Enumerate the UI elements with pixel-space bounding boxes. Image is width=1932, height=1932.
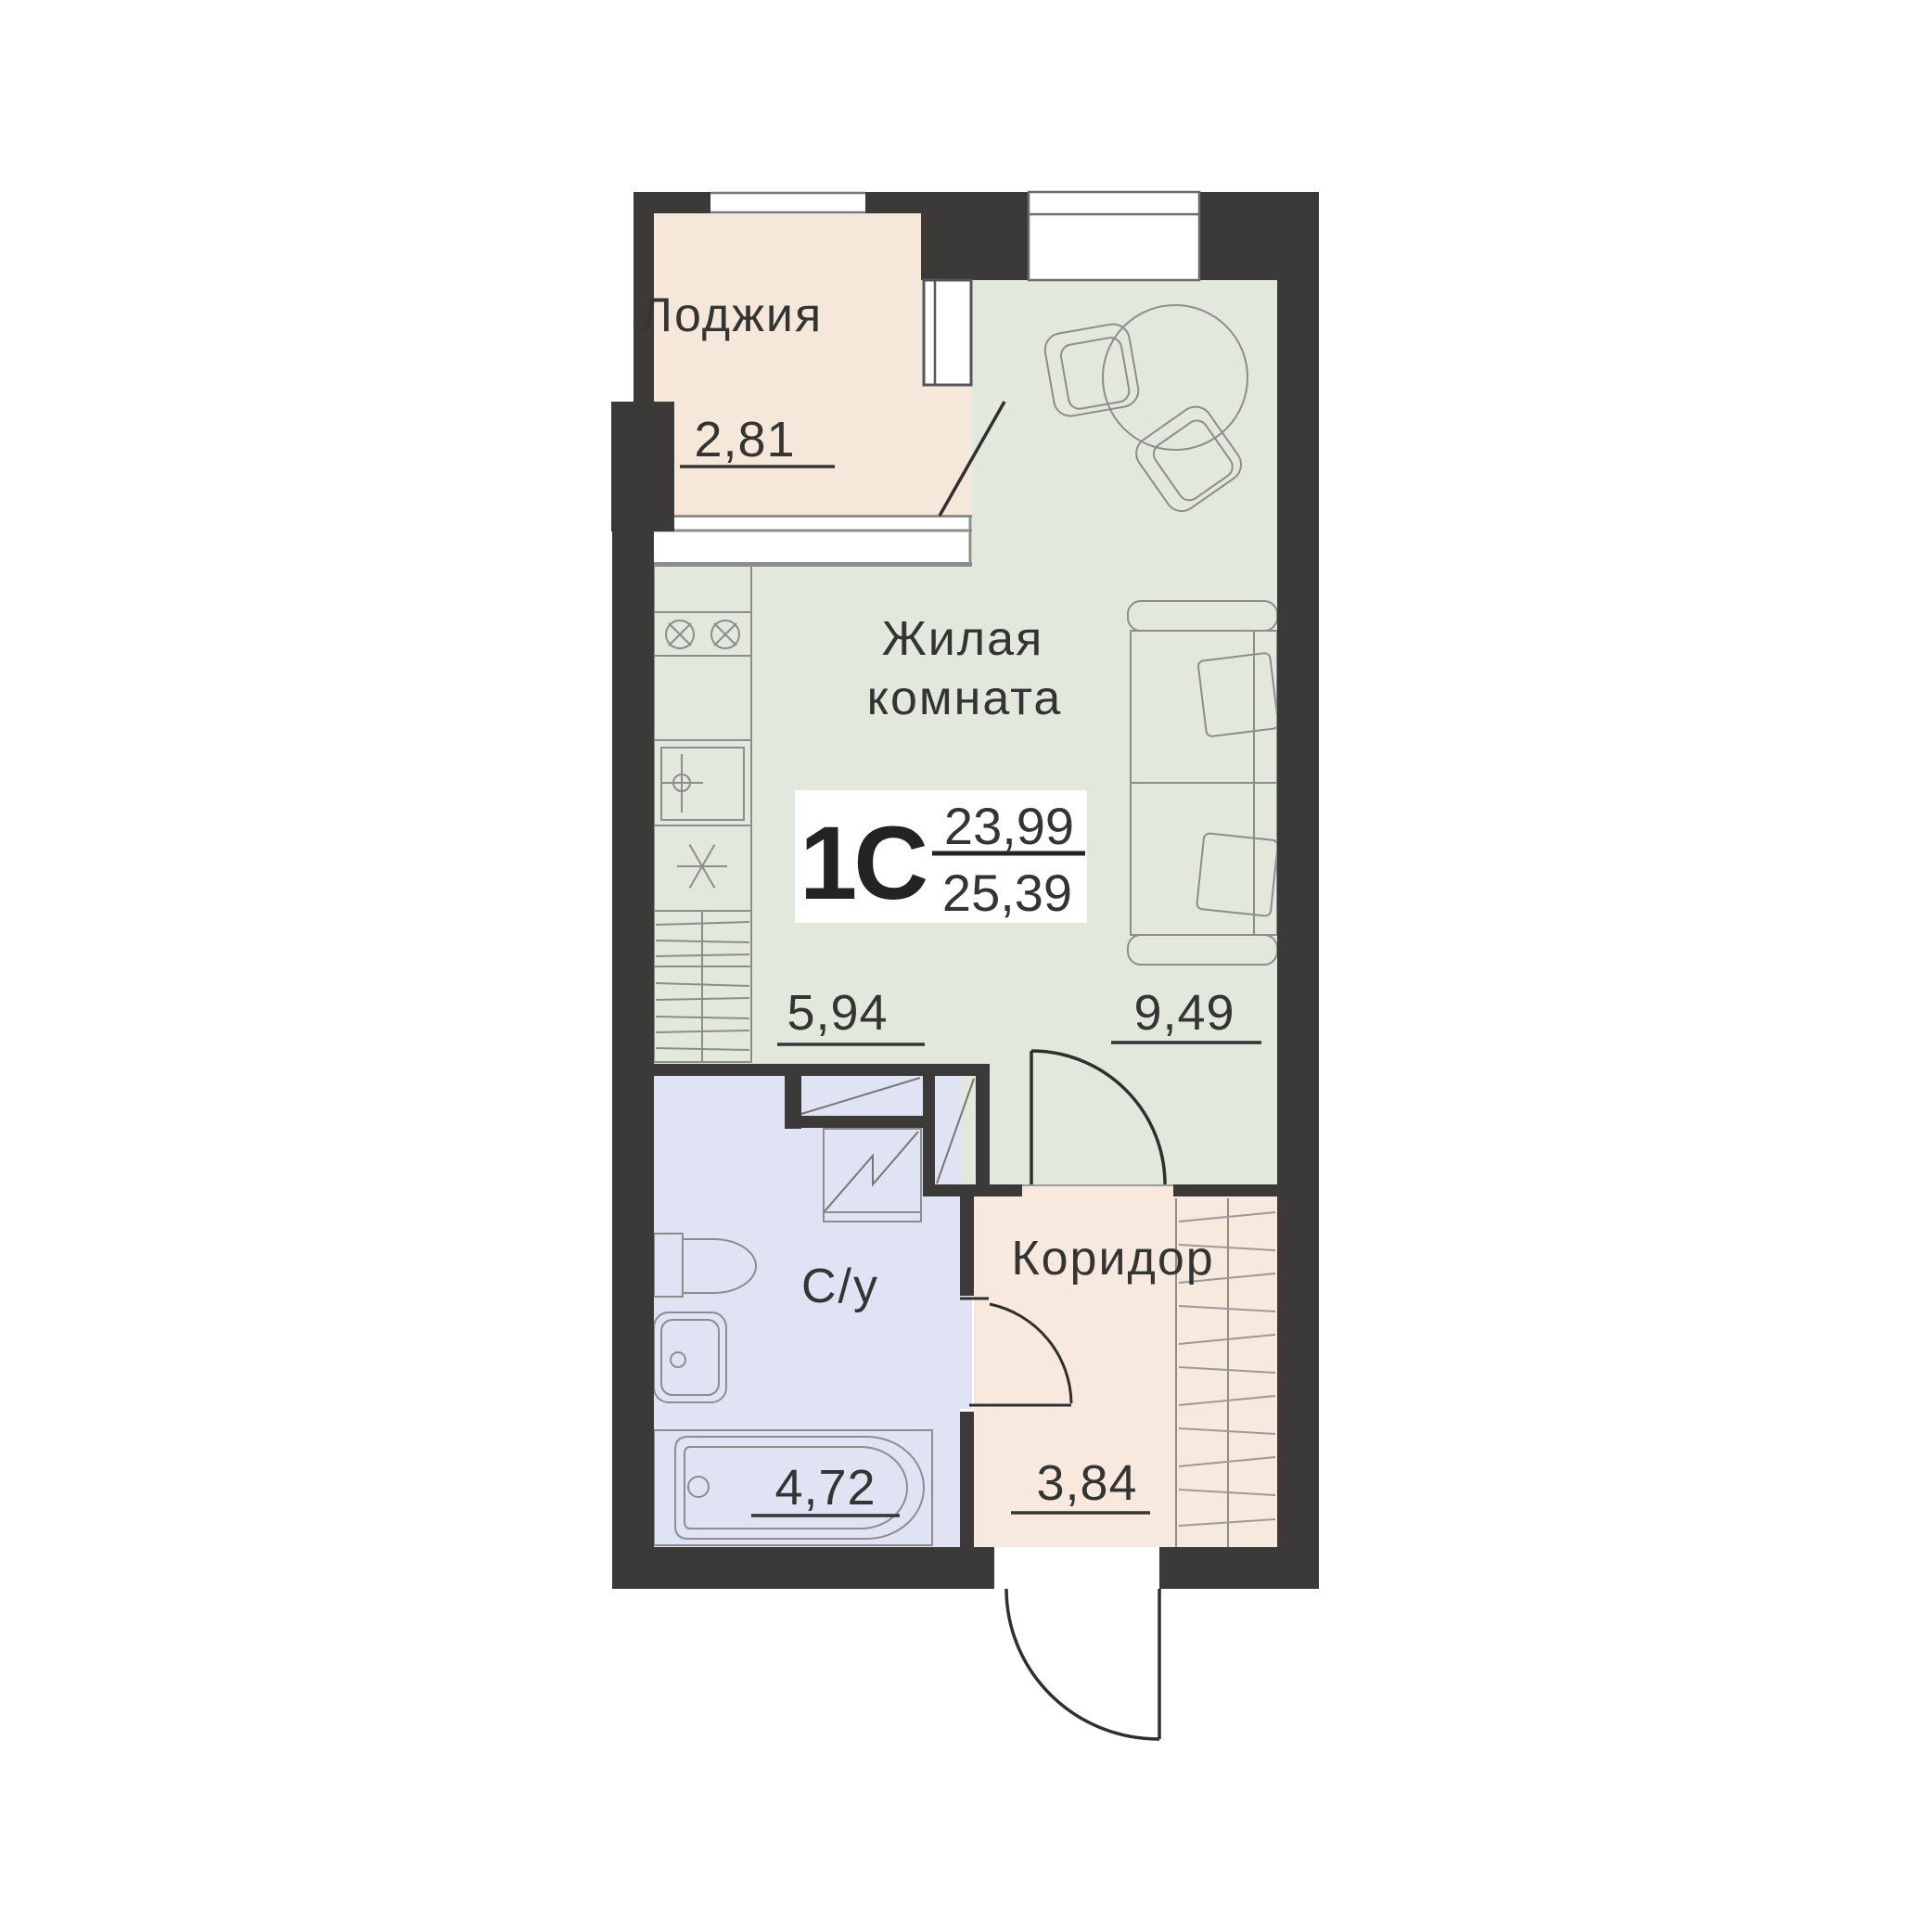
- wall-segment: [633, 192, 710, 213]
- area-total-value: 25,39: [942, 864, 1072, 922]
- wall-segment: [1199, 192, 1319, 280]
- loggia-side-window-icon: [924, 280, 971, 385]
- living-room-floor: [972, 280, 1277, 1184]
- apartment-type-label: 1С: [800, 805, 926, 921]
- room-area-corridor: 3,84: [1036, 1455, 1137, 1511]
- room-area-bathroom: 4,72: [774, 1460, 876, 1516]
- zone-area-kitchen: 5,94: [787, 985, 888, 1041]
- wall-pier: [611, 402, 674, 531]
- wall-segment: [921, 192, 1029, 280]
- room-label-bathroom: С/у: [801, 1260, 879, 1313]
- room-label-corridor: Коридор: [1011, 1232, 1214, 1286]
- loggia-window-icon: [710, 191, 865, 214]
- floor-plan-canvas: Лоджия 2,81 Жилая комната 5,94 9,49 С/у …: [0, 0, 1932, 1932]
- room-label-loggia: Лоджия: [641, 288, 823, 342]
- wall-segment: [960, 1412, 974, 1547]
- loggia-window-band: [654, 515, 972, 567]
- room-label-living-line2: комната: [867, 672, 1063, 725]
- room-label-living-line1: Жилая: [882, 612, 1043, 666]
- wall-segment: [1159, 1547, 1319, 1589]
- wall-segment: [612, 1547, 994, 1589]
- wall-segment: [865, 192, 921, 213]
- area-living-value: 23,99: [944, 797, 1074, 855]
- wall-segment: [960, 1196, 974, 1296]
- wall-segment: [974, 1184, 1022, 1196]
- wall-segment: [1173, 1184, 1277, 1196]
- wall-segment: [1277, 280, 1319, 1547]
- room-area-loggia: 2,81: [694, 412, 795, 467]
- title-block: 1С 23,99 25,39: [795, 790, 1087, 923]
- wall-segment: [976, 1076, 990, 1196]
- wall-segment: [798, 1116, 935, 1128]
- window-sill: [654, 515, 972, 566]
- zone-area-living: 9,49: [1133, 985, 1235, 1041]
- wall-segment: [923, 1076, 935, 1196]
- living-room-window-icon: [1029, 192, 1199, 280]
- bathroom-doorway-floor: [960, 1296, 972, 1409]
- wall-segment: [612, 531, 654, 1547]
- floor-plan-page: Лоджия 2,81 Жилая комната 5,94 9,49 С/у …: [0, 0, 1932, 1932]
- entrance-door-swing-icon: [1006, 1589, 1159, 1739]
